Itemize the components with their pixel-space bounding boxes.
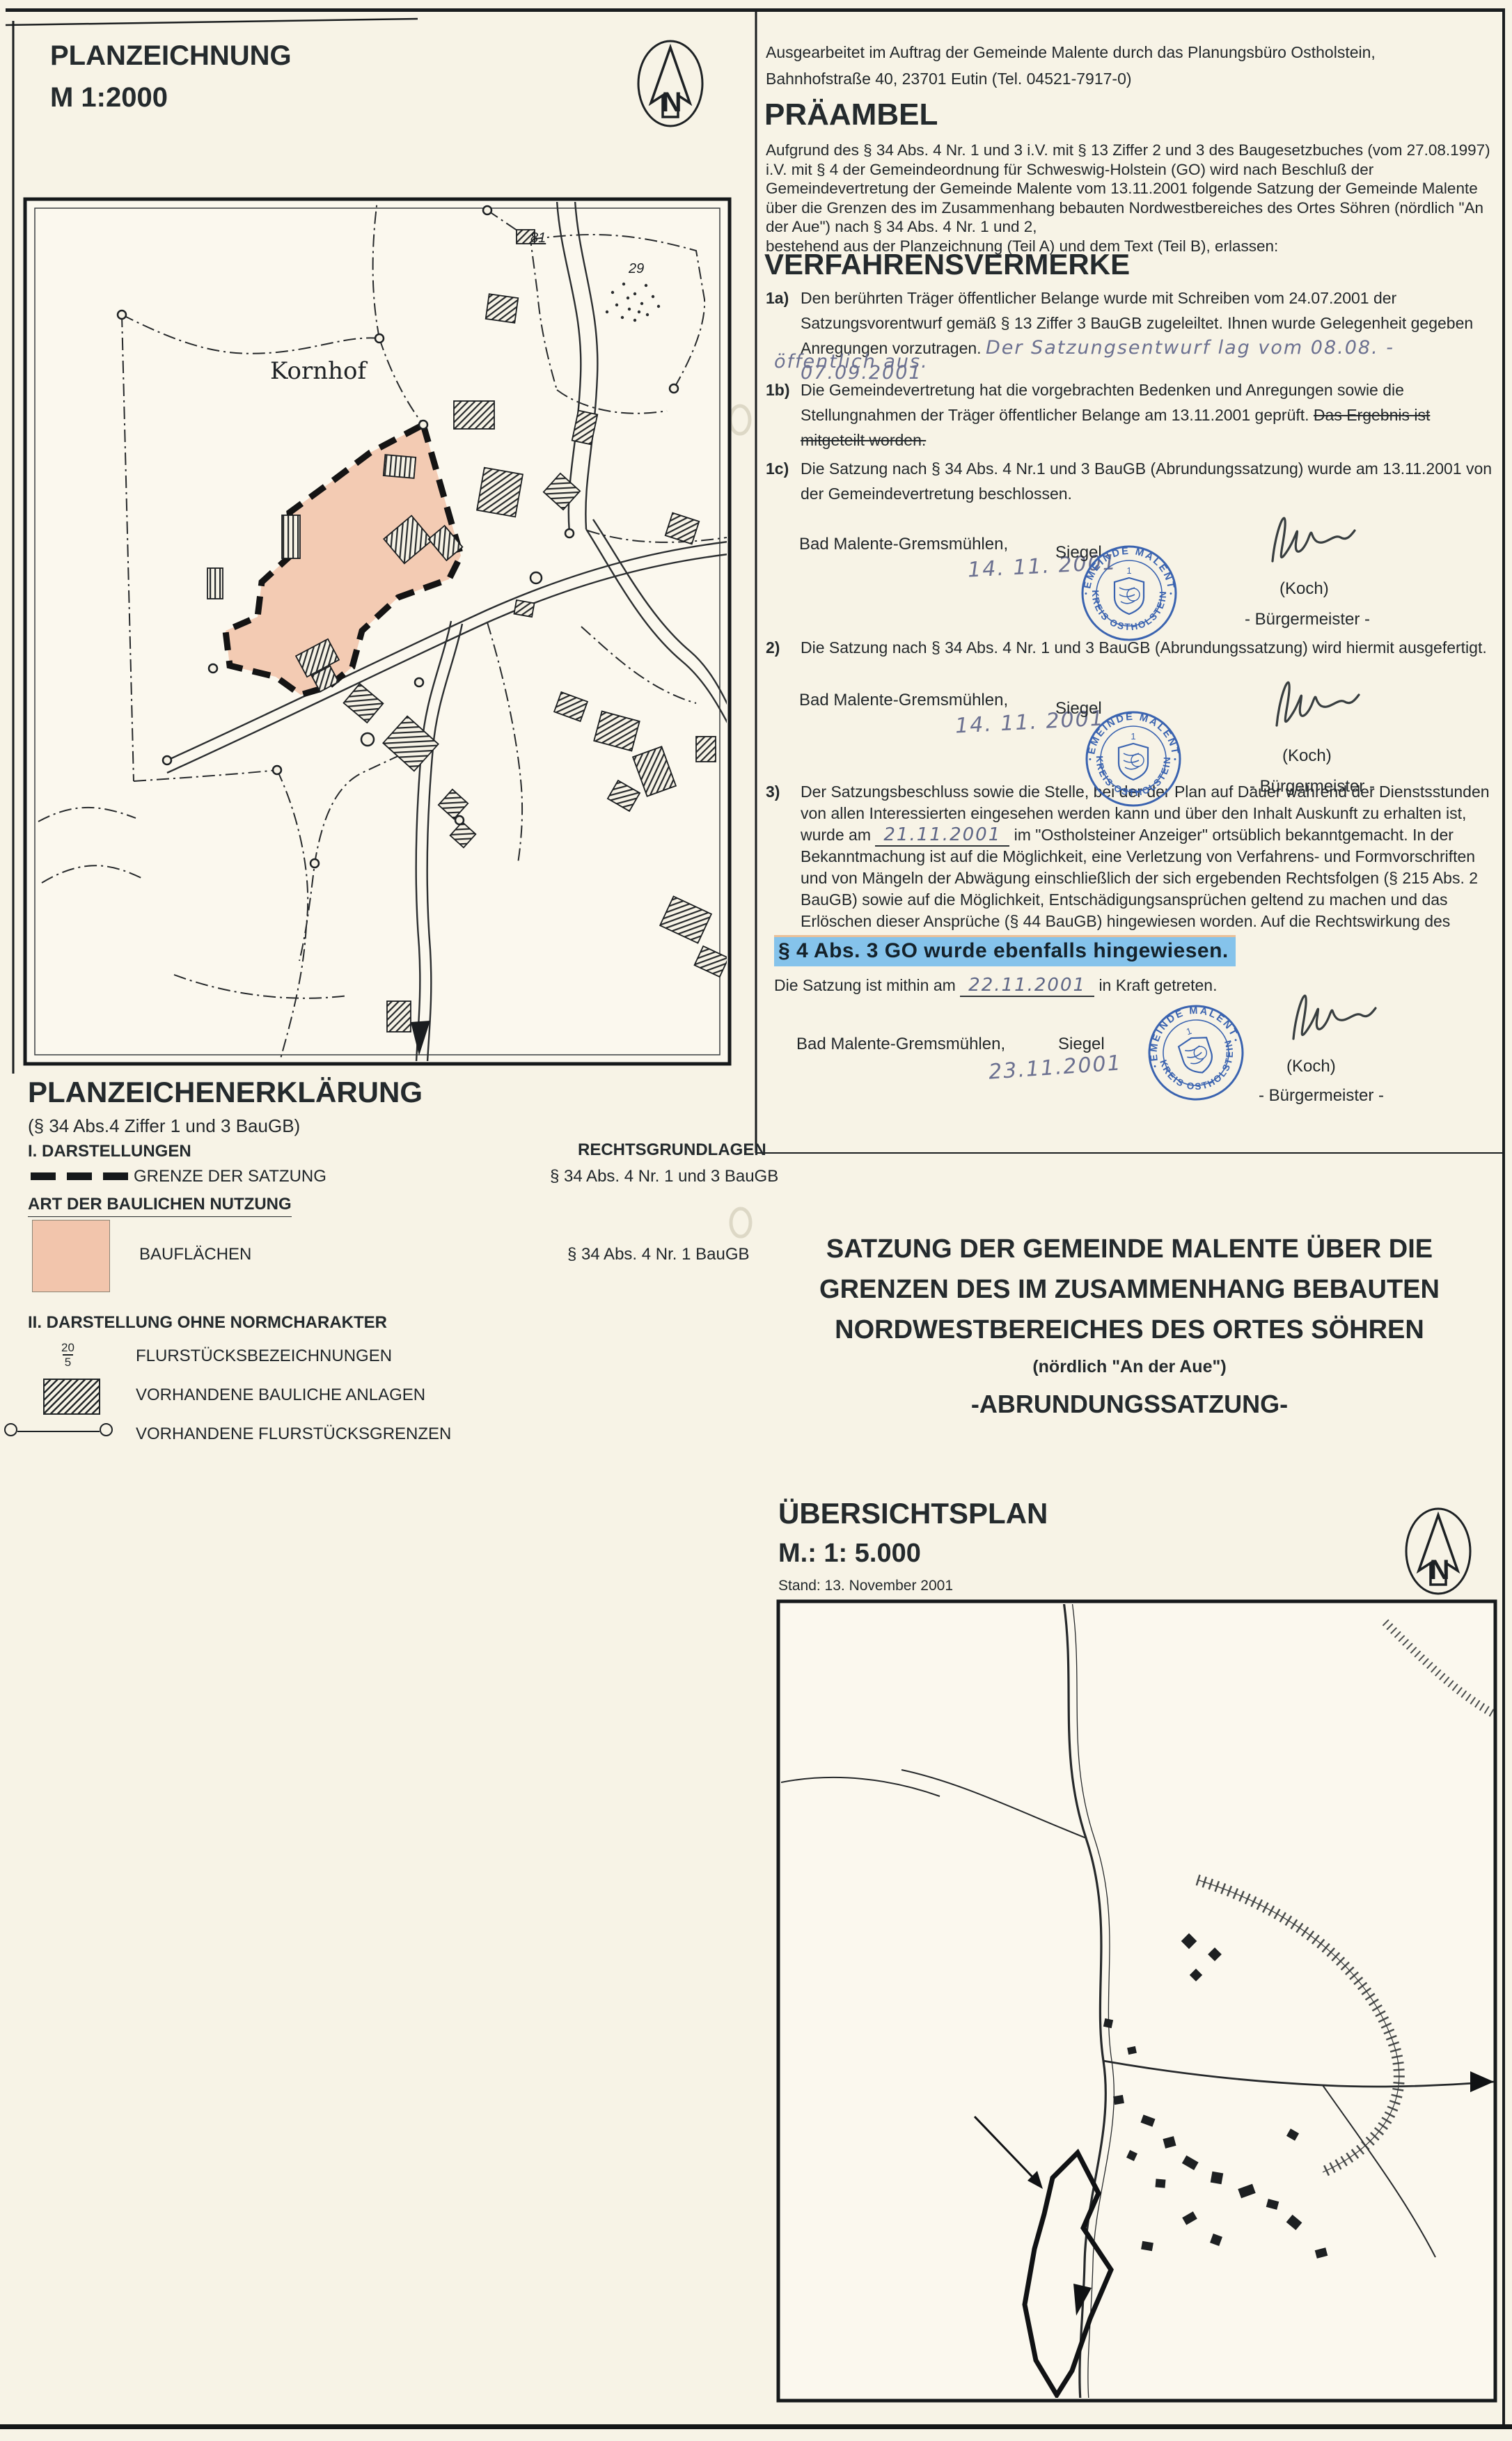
vermerk-2-number: 2)	[766, 635, 801, 660]
north-arrow-overview	[1406, 1509, 1470, 1594]
plan-title: PLANZEICHNUNG	[50, 40, 292, 72]
praeambel-body: Aufgrund des § 34 Abs. 4 Nr. 1 und 3 i.V…	[766, 141, 1491, 256]
nutzung-heading: ART DER BAULICHEN NUTZUNG	[28, 1195, 292, 1214]
anlagen-symbol	[43, 1379, 100, 1415]
inkraft-text-2: in Kraft getreten.	[1098, 976, 1217, 994]
legend-section1: I. DARSTELLUNGEN	[28, 1142, 191, 1161]
vermerk-3-highlight: § 4 Abs. 3 GO wurde ebenfalls hingewiese…	[774, 937, 1236, 966]
sig1-place: Bad Malente-Gremsmühlen,	[799, 535, 1008, 554]
sig3-siegel-label: Siegel	[1058, 1035, 1105, 1054]
flur-label: FLURSTÜCKSBEZEICHNUNGEN	[136, 1347, 392, 1366]
sig2-name: (Koch)	[1282, 746, 1332, 766]
vermerk-1b: 1b) Die Gemeindevertretung hat die vorge…	[766, 377, 1494, 453]
map-label: 81	[530, 231, 546, 245]
uebersicht-scale: M.: 1: 5.000	[778, 1539, 921, 1569]
north-arrow-plan	[638, 41, 702, 126]
grenzen-label: VORHANDENE FLURSTÜCKSGRENZEN	[136, 1424, 451, 1444]
anlagen-label: VORHANDENE BAULICHE ANLAGEN	[136, 1386, 425, 1405]
vermerk-1c-number: 1c)	[766, 456, 801, 481]
vermerk-1c: 1c) Die Satzung nach § 34 Abs. 4 Nr.1 un…	[766, 456, 1494, 506]
satzung-title-line5: -ABRUNDUNGSSATZUNG-	[762, 1383, 1497, 1425]
bauflaechen-symbol	[32, 1220, 110, 1292]
vermerk-1c-text: Die Satzung nach § 34 Abs. 4 Nr.1 und 3 …	[801, 456, 1494, 506]
vermerk-3-number: 3)	[766, 781, 801, 803]
punch-hole	[731, 1209, 750, 1237]
scanned-document-page: N	[0, 0, 1512, 2441]
plan-scale: M 1:2000	[50, 82, 168, 113]
vermerk-3: 3) Der Satzungsbeschluss sowie die Stell…	[766, 781, 1498, 932]
uebersichtsplan-map	[778, 1601, 1495, 2401]
vermerk-2: 2) Die Satzung nach § 34 Abs. 4 Nr. 1 un…	[766, 635, 1504, 660]
credit-line-2: Bahnhofstraße 40, 23701 Eutin (Tel. 0452…	[766, 67, 1490, 91]
map-label: Kornhof	[270, 359, 366, 383]
rechtsgrundlagen-title: RECHTSGRUNDLAGEN	[578, 1140, 766, 1160]
verfahrensvermerke-title: VERFAHRENSVERMERKE	[764, 248, 1130, 281]
uebersicht-title: ÜBERSICHTSPLAN	[778, 1497, 1048, 1530]
praeambel-text: Aufgrund des § 34 Abs. 4 Nr. 1 und 3 i.V…	[766, 141, 1490, 235]
flur-symbol-top: 20	[61, 1342, 74, 1354]
vermerk-1b-number: 1b)	[766, 377, 801, 402]
map-label: 29	[629, 262, 644, 276]
highlighted-sentence: § 4 Abs. 3 GO wurde ebenfalls hingewiese…	[774, 937, 1236, 966]
sig1-role: - Bürgermeister -	[1245, 610, 1370, 629]
sig3-place: Bad Malente-Gremsmühlen,	[796, 1035, 1005, 1054]
grenzen-symbol	[4, 1423, 113, 1440]
inkraft-text-1: Die Satzung ist mithin am	[774, 976, 956, 994]
planzeichnung-map	[25, 199, 732, 1064]
satzung-title-line2: GRENZEN DES IM ZUSAMMENHANG BEBAUTEN	[762, 1269, 1497, 1310]
sig3-role: - Bürgermeister -	[1259, 1086, 1384, 1106]
punch-hole	[730, 406, 750, 434]
sig2-siegel-label: Siegel	[1055, 699, 1102, 719]
sig3-name: (Koch)	[1286, 1057, 1336, 1076]
sig1-siegel-label: Siegel	[1055, 543, 1102, 563]
inkraft-handwritten-date: 22.11.2001	[960, 975, 1094, 997]
vermerk-1a-number: 1a)	[766, 285, 801, 311]
vermerk-1a-handwriting-2: öffentlich aus.	[774, 351, 929, 372]
credit-line-1: Ausgearbeitet im Auftrag der Gemeinde Ma…	[766, 40, 1490, 65]
grenze-symbol	[31, 1172, 139, 1180]
satzung-title-line4: (nördlich "An der Aue")	[762, 1350, 1497, 1383]
sig2-place: Bad Malente-Gremsmühlen,	[799, 691, 1008, 710]
flur-symbol: 205	[61, 1341, 74, 1369]
bauflaechen-law: § 34 Abs. 4 Nr. 1 BauGB	[567, 1245, 750, 1264]
satzung-title-line1: SATZUNG DER GEMEINDE MALENTE ÜBER DIE	[762, 1229, 1497, 1269]
vermerk-2-text: Die Satzung nach § 34 Abs. 4 Nr. 1 und 3…	[801, 635, 1504, 660]
praeambel-title: PRÄAMBEL	[764, 97, 938, 132]
satzung-title-block: SATZUNG DER GEMEINDE MALENTE ÜBER DIE GR…	[762, 1229, 1497, 1425]
flur-symbol-bottom: 5	[63, 1354, 73, 1369]
vermerk-3-inkraft: Die Satzung ist mithin am 22.11.2001 in …	[774, 973, 1498, 998]
vermerk-3-handwritten-date: 21.11.2001	[875, 824, 1009, 847]
uebersicht-stand: Stand: 13. November 2001	[778, 1578, 953, 1594]
legend-title: PLANZEICHENERKLÄRUNG	[28, 1076, 423, 1109]
satzung-title-line3: NORDWESTBEREICHES DES ORTES SÖHREN	[762, 1310, 1497, 1350]
grenze-law: § 34 Abs. 4 Nr. 1 und 3 BauGB	[550, 1167, 778, 1186]
legend-subtitle: (§ 34 Abs.4 Ziffer 1 und 3 BauGB)	[28, 1115, 300, 1137]
legend-section2: II. DARSTELLUNG OHNE NORMCHARAKTER	[28, 1313, 387, 1333]
sig1-name: (Koch)	[1279, 579, 1329, 599]
bauflaechen-label: BAUFLÄCHEN	[139, 1245, 251, 1264]
grenze-label: GRENZE DER SATZUNG	[134, 1167, 326, 1186]
